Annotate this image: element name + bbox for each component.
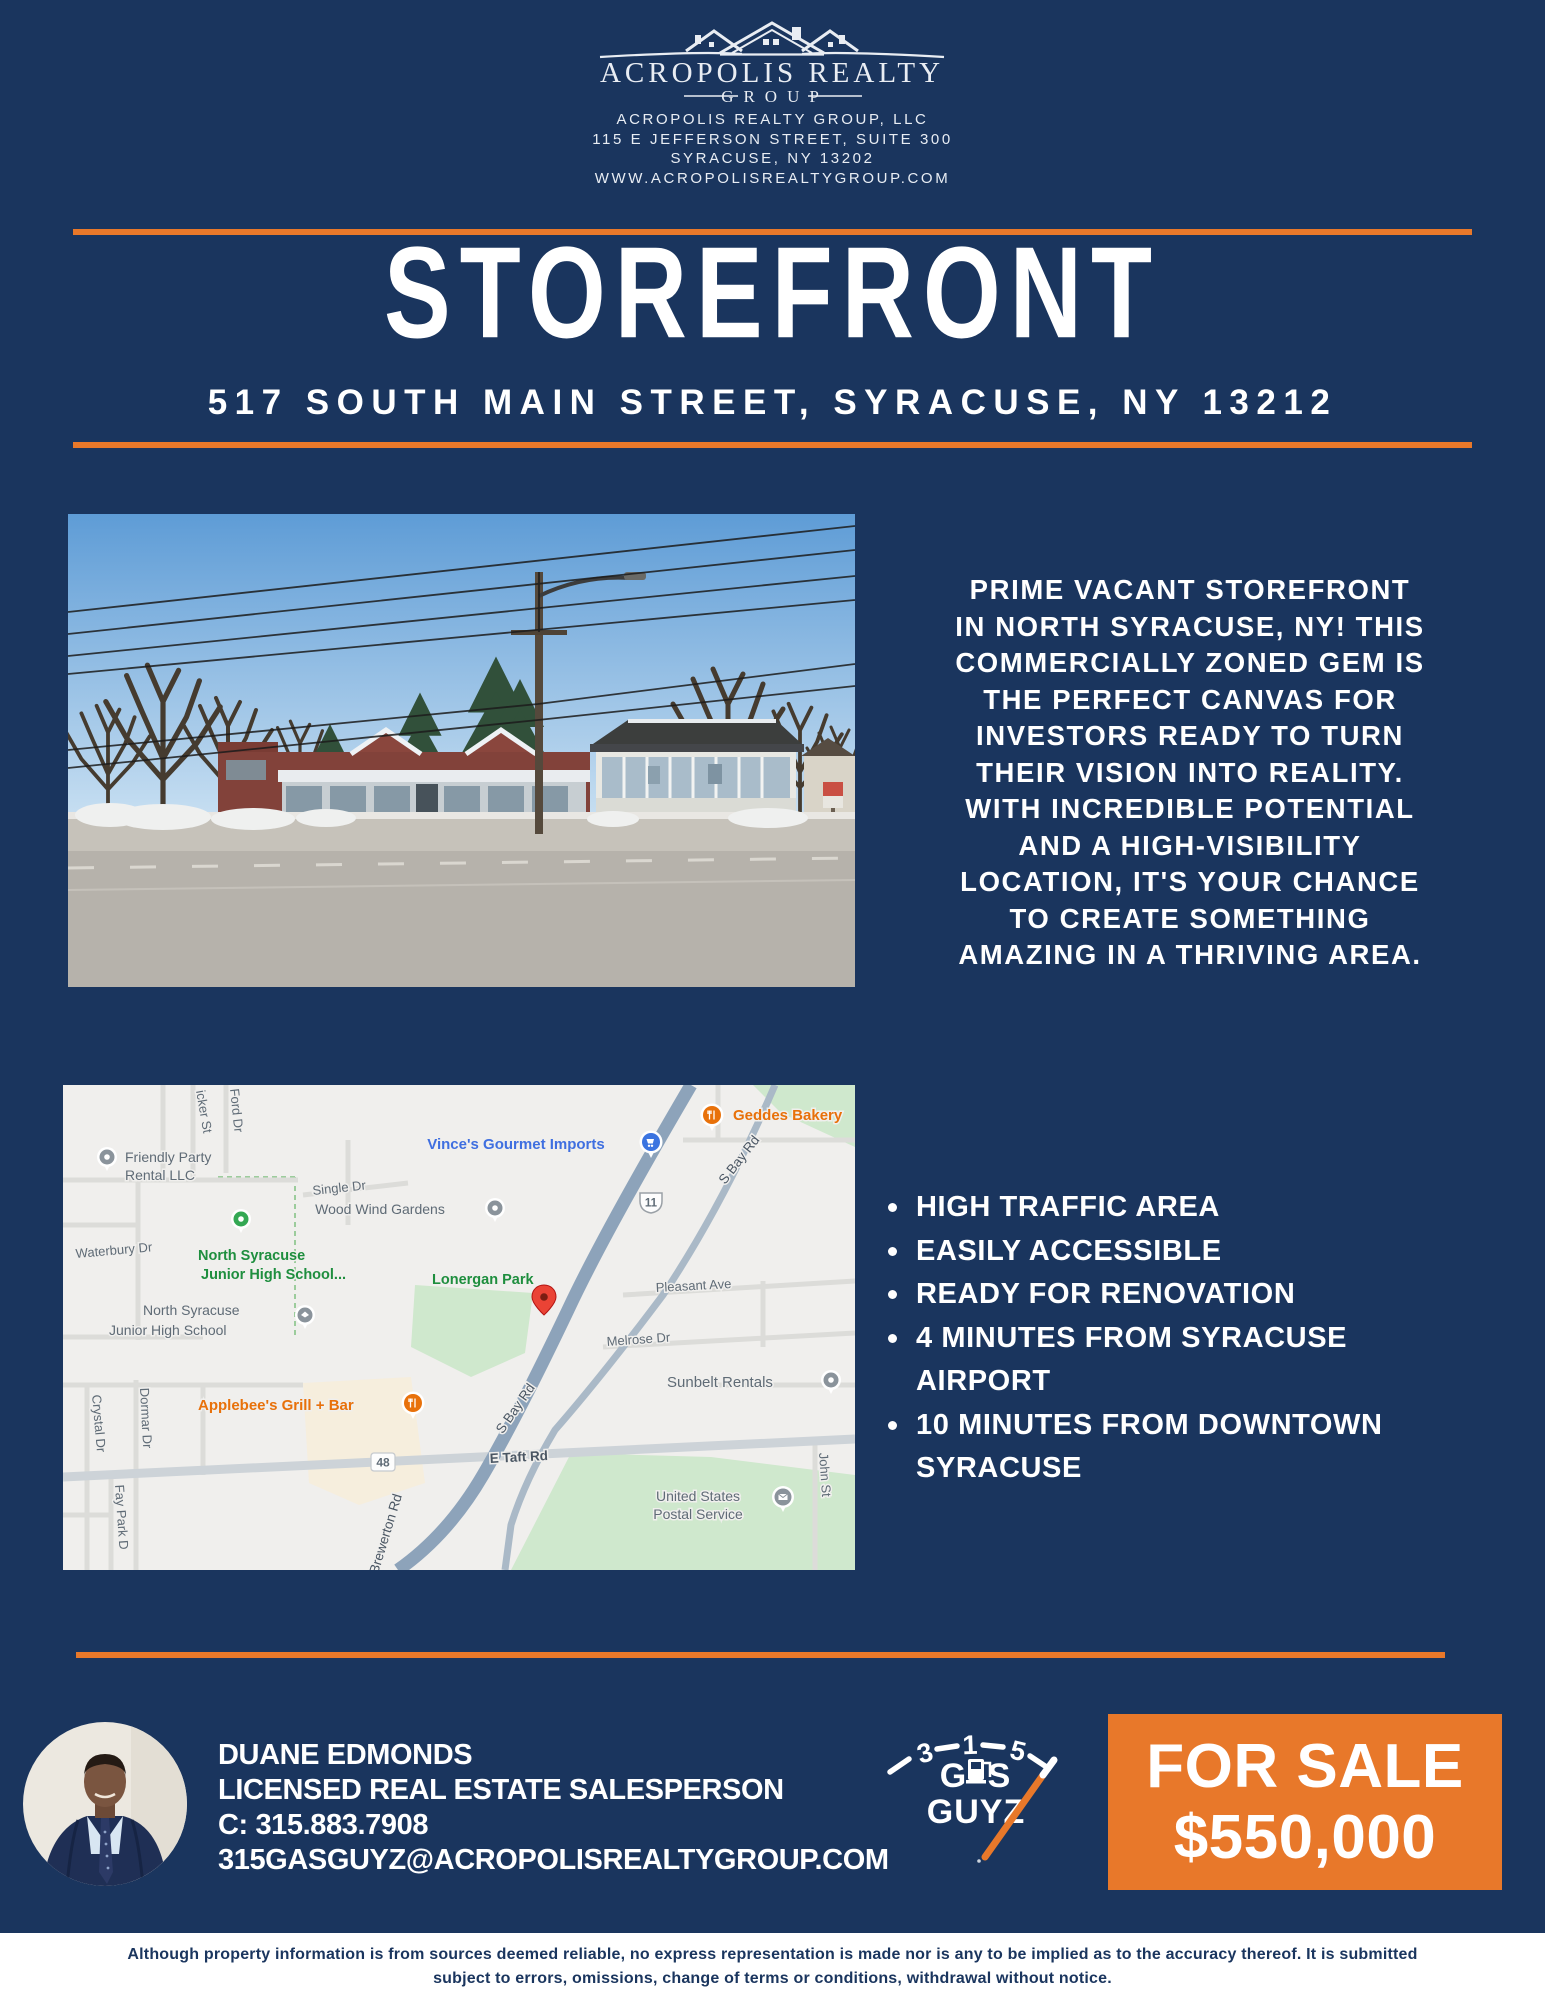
for-sale-banner: FOR SALE $550,000	[1108, 1714, 1502, 1890]
description-line: COMMERCIALLY ZONED GEM IS	[880, 645, 1500, 682]
route-48-badge: 48	[371, 1453, 395, 1471]
agent-headshot	[23, 1722, 187, 1886]
company-city: SYRACUSE, NY 13202	[0, 149, 1545, 169]
description-line: LOCATION, IT'S YOUR CHANCE	[880, 864, 1500, 901]
svg-text:48: 48	[376, 1456, 390, 1470]
gauge-number-1: 1	[962, 1730, 978, 1761]
disclaimer-line: subject to errors, omissions, change of …	[0, 1967, 1545, 1991]
map-label: Lonergan Park	[432, 1272, 534, 1288]
map-label: Junior High School...	[201, 1267, 346, 1283]
map-label: Junior High School	[109, 1322, 227, 1338]
gauge-number-5: 5	[1007, 1735, 1029, 1768]
feature-item: READY FOR RENOVATION	[882, 1273, 1448, 1317]
company-name: ACROPOLIS REALTY GROUP, LLC	[0, 110, 1545, 130]
gas-pump-icon	[966, 1759, 990, 1784]
description-line: TO CREATE SOMETHING	[880, 901, 1500, 938]
gauge-number-3: 3	[914, 1737, 937, 1770]
description-line: IN NORTH SYRACUSE, NY! THIS	[880, 609, 1500, 646]
feature-item: HIGH TRAFFIC AREA	[882, 1186, 1448, 1230]
map-label: E Taft Rd	[489, 1448, 548, 1466]
description-line: WITH INCREDIBLE POTENTIAL	[880, 791, 1500, 828]
description-line: THE PERFECT CANVAS FOR	[880, 682, 1500, 719]
location-map: 11 48 Friendly Party Rental LLC icker St…	[63, 1085, 855, 1570]
property-description: PRIME VACANT STOREFRONT IN NORTH SYRACUS…	[880, 572, 1500, 974]
map-label: Friendly Party	[125, 1149, 211, 1165]
disclaimer-footer: Although property information is from so…	[0, 1933, 1545, 2000]
company-website: WWW.ACROPOLISREALTYGROUP.COM	[0, 169, 1545, 189]
road-foreground	[68, 803, 855, 987]
company-street: 115 E JEFFERSON STREET, SUITE 300	[0, 130, 1545, 150]
for-sale-label: FOR SALE	[1108, 1731, 1502, 1802]
company-address-block: ACROPOLIS REALTY GROUP, LLC 115 E JEFFER…	[0, 110, 1545, 188]
houses-icon	[600, 23, 944, 57]
map-label: Sunbelt Rentals	[667, 1374, 773, 1391]
description-line: PRIME VACANT STOREFRONT	[880, 572, 1500, 609]
feature-item: EASILY ACCESSIBLE	[882, 1230, 1448, 1274]
gas-letter-g: G	[940, 1757, 966, 1795]
agent-name: DUANE EDMONDS	[218, 1738, 889, 1773]
map-label: Vince's Gourmet Imports	[427, 1136, 605, 1153]
flyer-page: ACROPOLIS REALTY GROUP ACROPOLIS REALTY …	[0, 0, 1545, 2000]
description-line: THEIR VISION INTO REALITY.	[880, 755, 1500, 792]
feature-list: HIGH TRAFFIC AREA EASILY ACCESSIBLE READ…	[882, 1186, 1448, 1491]
map-label: North Syracuse	[198, 1248, 305, 1264]
feature-item: 10 MINUTES FROM DOWNTOWN SYRACUSE	[882, 1404, 1448, 1491]
map-label: Rental LLC	[125, 1167, 195, 1183]
orange-divider-bottom	[76, 1652, 1445, 1658]
feature-item: 4 MINUTES FROM SYRACUSE AIRPORT	[882, 1317, 1448, 1404]
agent-email: 315GASGUYZ@ACROPOLISREALTYGROUP.COM	[218, 1843, 889, 1878]
map-label: North Syracuse	[143, 1302, 240, 1318]
map-label: Wood Wind Gardens	[315, 1201, 445, 1217]
svg-text:11: 11	[645, 1198, 658, 1210]
agent-info-block: DUANE EDMONDS LICENSED REAL ESTATE SALES…	[218, 1738, 889, 1878]
sale-price: $550,000	[1108, 1802, 1502, 1873]
route-11-shield: 11	[640, 1193, 662, 1213]
map-label: Postal Service	[653, 1506, 743, 1522]
agent-phone: C: 315.883.7908	[218, 1808, 889, 1843]
orange-divider-subtitle	[73, 442, 1472, 448]
gas-guyz-logo: 3 1 5 G S GUYZ	[875, 1720, 1075, 1865]
map-label: Dormar Dr	[137, 1387, 155, 1449]
description-line: AND A HIGH-VISIBILITY	[880, 828, 1500, 865]
property-address: 517 SOUTH MAIN STREET, SYRACUSE, NY 1321…	[0, 383, 1545, 423]
acropolis-logo: ACROPOLIS REALTY GROUP	[592, 16, 952, 108]
disclaimer-line: Although property information is from so…	[0, 1943, 1545, 1967]
description-line: AMAZING IN A THRIVING AREA.	[880, 937, 1500, 974]
map-label: Applebee's Grill + Bar	[198, 1397, 354, 1414]
description-line: INVESTORS READY TO TURN	[880, 718, 1500, 755]
agent-title: LICENSED REAL ESTATE SALESPERSON	[218, 1773, 889, 1808]
property-photo	[68, 514, 855, 987]
map-label: United States	[656, 1488, 740, 1504]
map-label: John St	[816, 1452, 834, 1497]
page-title: STOREFRONT	[0, 228, 1545, 358]
map-label: Geddes Bakery	[733, 1107, 843, 1124]
brand-name: ACROPOLIS REALTY	[600, 57, 944, 89]
